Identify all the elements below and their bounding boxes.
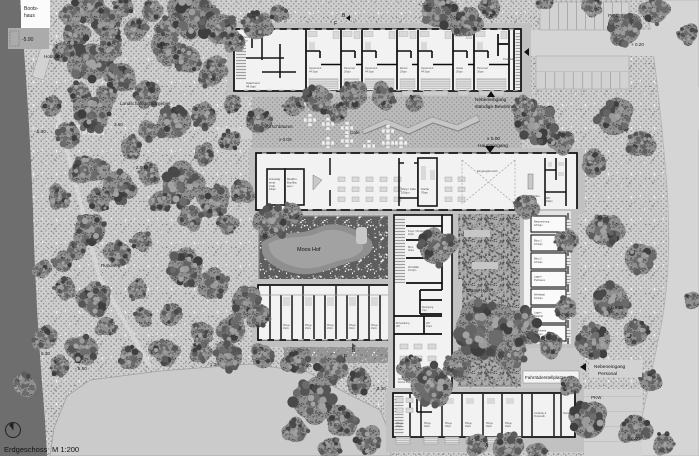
svg-text:Personal: Personal — [344, 66, 355, 70]
svg-text:26qm: 26qm — [477, 69, 484, 73]
svg-text:- 5.50: - 5.50 — [75, 366, 87, 371]
svg-text:18.0qm: 18.0qm — [534, 223, 543, 227]
svg-text:26qm: 26qm — [371, 327, 377, 330]
svg-text:Apartment: Apartment — [309, 66, 322, 70]
svg-text:-5.90: -5.90 — [22, 37, 34, 43]
svg-text:26qm: 26qm — [424, 425, 430, 428]
svg-text:26qm: 26qm — [465, 425, 471, 428]
svg-text:Potentialer: Potentialer — [503, 57, 516, 61]
svg-text:- 0.40: - 0.40 — [327, 422, 339, 427]
svg-text:Werkstatt: Werkstatt — [534, 293, 545, 297]
svg-text:Personal: Personal — [598, 371, 617, 377]
svg-text:26qm: 26qm — [327, 327, 333, 330]
svg-text:26qm: 26qm — [305, 327, 311, 330]
svg-text:M 1:200: M 1:200 — [52, 445, 79, 454]
svg-text:19qm: 19qm — [269, 187, 277, 191]
svg-text:6.30: 6.30 — [55, 200, 64, 205]
svg-text:3.50: 3.50 — [160, 42, 169, 47]
svg-text:Küche 55qm: Küche 55qm — [398, 381, 412, 384]
svg-text:10qm: 10qm — [426, 325, 432, 328]
svg-text:7qm: 7qm — [422, 309, 427, 312]
svg-text:eqm: eqm — [287, 184, 293, 188]
svg-text:26qm: 26qm — [396, 425, 402, 428]
svg-text:11qm: 11qm — [408, 233, 414, 236]
svg-text:Einzel: Einzel — [400, 66, 408, 70]
svg-text:100qm: 100qm — [401, 190, 410, 194]
svg-text:+ 0.90: + 0.90 — [607, 305, 620, 310]
svg-text:Putzraum: Putzraum — [534, 278, 545, 282]
svg-text:Lager /: Lager / — [534, 311, 542, 315]
svg-text:Rundweg: Rundweg — [101, 263, 121, 268]
svg-text:Nebeneingang: Nebeneingang — [475, 97, 507, 103]
svg-text:Gäste: Gäste — [456, 66, 464, 70]
svg-text:F: F — [344, 354, 347, 360]
svg-text:- 5.30: - 5.30 — [34, 129, 46, 134]
svg-text:F: F — [334, 21, 337, 27]
svg-text:Landschaftsschutzgebiet: Landschaftsschutzgebiet — [120, 101, 171, 106]
svg-text:x 0.00: x 0.00 — [487, 136, 500, 142]
svg-text:+ 0.20: + 0.20 — [631, 42, 644, 47]
svg-text:44.0qm: 44.0qm — [309, 69, 319, 73]
svg-text:0.90: 0.90 — [302, 363, 311, 368]
svg-text:Lager /: Lager / — [534, 275, 542, 279]
svg-text:26qm: 26qm — [349, 327, 355, 330]
svg-text:Kirschbäume: Kirschbäume — [266, 124, 293, 129]
svg-text:3.50: 3.50 — [114, 122, 123, 127]
svg-text:- 2.80: - 2.80 — [133, 165, 145, 170]
svg-text:20qm: 20qm — [408, 249, 414, 252]
svg-text:Gräser Hof: Gräser Hof — [466, 288, 489, 293]
svg-text:PKW: PKW — [608, 13, 619, 18]
svg-text:19qm: 19qm — [546, 199, 553, 203]
svg-text:PKW: PKW — [591, 395, 602, 400]
svg-text:Personalb.: Personalb. — [534, 415, 546, 418]
svg-text:haus: haus — [24, 13, 35, 19]
svg-text:26qm: 26qm — [486, 425, 492, 428]
svg-text:44.0qm: 44.0qm — [421, 69, 431, 73]
svg-text:70qm: 70qm — [421, 190, 429, 194]
svg-text:16.0qm: 16.0qm — [534, 296, 543, 300]
svg-text:- 1.30: - 1.30 — [207, 362, 219, 367]
svg-text:44.0qm: 44.0qm — [365, 69, 375, 73]
svg-text:- 0.30: - 0.30 — [374, 386, 386, 391]
svg-text:Personal: Personal — [477, 66, 488, 70]
svg-text:+ 0.10: + 0.10 — [418, 2, 431, 7]
svg-text:16.0qm: 16.0qm — [408, 269, 416, 272]
svg-text:+ 0.05: + 0.05 — [203, 4, 216, 9]
svg-text:Besprechung: Besprechung — [534, 220, 550, 224]
svg-text:Apartment: Apartment — [365, 66, 378, 70]
svg-text:Boots-: Boots- — [24, 6, 39, 12]
svg-text:26qm: 26qm — [505, 425, 511, 428]
svg-text:Apartment: Apartment — [421, 66, 434, 70]
svg-text:Haupteingang: Haupteingang — [478, 143, 508, 149]
svg-text:ständige Bewohner: ständige Bewohner — [475, 104, 516, 110]
svg-text:16.0qm: 16.0qm — [534, 260, 543, 264]
svg-text:Café: Café — [350, 130, 360, 135]
svg-text:0.80: 0.80 — [631, 436, 640, 441]
svg-text:6.30: 6.30 — [41, 351, 50, 356]
svg-text:26qm: 26qm — [400, 69, 407, 73]
svg-text:Nebeneingang: Nebeneingang — [594, 364, 626, 370]
svg-text:26qm: 26qm — [283, 327, 289, 330]
svg-text:Büro 1: Büro 1 — [534, 239, 542, 243]
svg-text:Fahrräderstellplatz: Fahrräderstellplatz — [525, 375, 564, 380]
svg-text:WC: WC — [396, 325, 400, 328]
svg-text:Eingangsbereich: Eingangsbereich — [477, 169, 498, 173]
svg-text:Erdgeschoss: Erdgeschoss — [4, 445, 48, 454]
svg-text:16.0qm: 16.0qm — [534, 242, 543, 246]
svg-text:26qm: 26qm — [456, 69, 463, 73]
svg-text:Moos Hof: Moos Hof — [297, 247, 321, 253]
svg-text:26qm: 26qm — [445, 425, 451, 428]
svg-text:44.0qm: 44.0qm — [246, 85, 257, 89]
svg-text:26qm: 26qm — [344, 69, 351, 73]
svg-text:Holzdeck: Holzdeck — [44, 54, 64, 59]
svg-text:x 0.00: x 0.00 — [279, 137, 292, 142]
svg-text:Büro 2: Büro 2 — [534, 257, 542, 261]
